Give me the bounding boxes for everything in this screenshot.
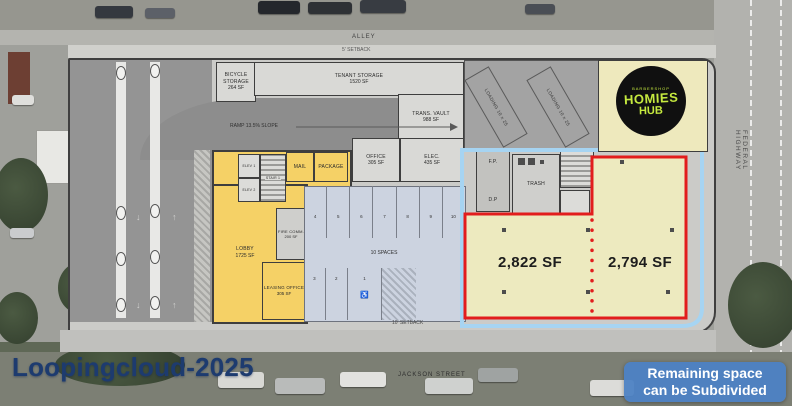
column xyxy=(502,290,506,294)
parking-stall-accessible: 1 ♿ xyxy=(347,268,382,320)
parked-car xyxy=(308,2,352,14)
room-name: STAIR 1 xyxy=(265,176,281,181)
room-area: 1725 SF xyxy=(216,253,274,260)
parking-count-label: 10 SPACES xyxy=(344,250,424,256)
stall-number: 3 xyxy=(313,276,316,281)
parking-stall: 9 xyxy=(419,186,442,238)
parking-stall: 3 xyxy=(304,268,325,320)
room-mail: MAIL xyxy=(286,152,314,182)
parking-stall: 5 xyxy=(326,186,349,238)
top-setback-label: 5' SETBACK xyxy=(342,47,370,53)
column xyxy=(150,64,160,78)
parked-car xyxy=(275,378,325,394)
wheelchair-icon: ♿ xyxy=(360,291,369,299)
trash-bin xyxy=(528,158,535,165)
parking-stall: 2 xyxy=(325,268,347,320)
room-name: BICYCLE STORAGE xyxy=(217,72,255,85)
room-package: PACKAGE xyxy=(314,152,348,182)
column xyxy=(666,290,670,294)
room-area: 264 SF xyxy=(228,85,244,92)
traffic-arrow-up: ↑ xyxy=(172,212,177,222)
column xyxy=(150,250,160,264)
bottom-setback-label: 10' SETBACK xyxy=(392,320,423,326)
parked-car xyxy=(478,368,518,382)
parked-car xyxy=(425,378,473,394)
parked-car xyxy=(10,228,34,238)
room-elec: ELEC. 435 SF xyxy=(400,138,464,182)
parking-stall: 4 xyxy=(304,186,326,238)
parked-car xyxy=(145,8,175,18)
parking-stall: 6 xyxy=(349,186,372,238)
trash-bin xyxy=(518,158,525,165)
top-setback-strip xyxy=(68,45,716,58)
room-name: PACKAGE xyxy=(318,164,343,171)
room-area: 988 SF xyxy=(423,117,439,124)
homies-hub-logo: BARBERSHOP HOMIES HUB xyxy=(616,66,686,136)
stall-number: 6 xyxy=(360,214,363,219)
logo-name-line2: HUB xyxy=(639,104,663,117)
room-name: ELEV 1 xyxy=(242,164,255,169)
callout-line1: Remaining space xyxy=(647,365,762,383)
tree xyxy=(0,292,38,344)
room-office: OFFICE 305 SF xyxy=(352,138,400,182)
bottom-sidewalk xyxy=(60,330,716,352)
traffic-arrow-down: ↓ xyxy=(136,212,141,222)
available-space-1-area: 2,822 SF xyxy=(498,254,562,271)
room-name: ELEV 2 xyxy=(242,188,255,193)
stall-number: 4 xyxy=(314,214,317,219)
column xyxy=(620,160,624,164)
parking-stall: 8 xyxy=(396,186,419,238)
traffic-arrow-down: ↓ xyxy=(136,300,141,310)
column xyxy=(116,252,126,266)
room-area: 305 SF xyxy=(368,160,384,167)
parked-car xyxy=(340,372,386,387)
alley-sidewalk xyxy=(0,30,792,45)
lane-stripe xyxy=(150,62,160,318)
stall-number: 1 xyxy=(363,276,366,281)
jackson-street-label: JACKSON STREET xyxy=(398,372,466,378)
column xyxy=(150,204,160,218)
parking-stall-hatched xyxy=(381,268,416,320)
room-fire-comm: FIRE COMM. 200 SF xyxy=(276,208,306,260)
room-bicycle-storage: BICYCLE STORAGE 264 SF xyxy=(216,62,256,102)
stair-1: STAIR 1 xyxy=(260,154,286,202)
lane-stripe xyxy=(116,62,126,318)
room-area: 435 SF xyxy=(424,160,440,167)
elev-3 xyxy=(560,190,590,216)
stall-number: 2 xyxy=(335,276,338,281)
room-area: 1520 SF xyxy=(350,79,369,86)
room-name: MAIL xyxy=(294,164,306,171)
room-name: TRASH xyxy=(527,181,545,188)
lobby-label: LOBBY 1725 SF xyxy=(216,246,274,259)
stair-2 xyxy=(560,150,594,188)
elev-1: ELEV 1 xyxy=(238,154,260,178)
room-area: 305 SF xyxy=(277,291,292,297)
drive-aisle xyxy=(70,60,212,322)
parked-car xyxy=(258,1,300,14)
tree xyxy=(0,158,48,232)
interior-walkway xyxy=(194,150,210,322)
room-area: 200 SF xyxy=(285,234,298,239)
column xyxy=(586,228,590,232)
room-name: D.P xyxy=(489,197,498,204)
column xyxy=(116,298,126,312)
stall-number: 10 xyxy=(451,214,456,219)
parking-row-top: 4 5 6 7 8 9 10 xyxy=(304,186,464,238)
available-space-2-area: 2,794 SF xyxy=(608,254,672,271)
room-leasing-office: LEASING OFFICE 305 SF xyxy=(262,262,306,320)
stall-number: 5 xyxy=(337,214,340,219)
elev-2: ELEV 2 xyxy=(238,178,260,202)
traffic-arrow-up: ↑ xyxy=(172,300,177,310)
lane-marking xyxy=(780,0,782,406)
parked-car xyxy=(525,4,555,14)
column xyxy=(670,228,674,232)
column xyxy=(116,66,126,80)
site-plan-flyer: ↓ ↑ ↓ ↑ BICYCLE STORAGE 264 SF TENANT ST… xyxy=(0,0,792,406)
stall-number: 9 xyxy=(430,214,433,219)
alley-label: ALLEY xyxy=(352,34,376,40)
federal-highway-label: FEDERAL HIGHWAY xyxy=(734,130,748,174)
room-tenant-storage: TENANT STORAGE 1520 SF xyxy=(254,62,464,96)
subdivide-callout-badge: Remaining space can be Subdivided xyxy=(624,362,786,402)
stall-number: 7 xyxy=(383,214,386,219)
parking-stall: 7 xyxy=(372,186,395,238)
ramp-label: RAMP 13.5% SLOPE xyxy=(230,123,278,129)
stall-number: 8 xyxy=(406,214,409,219)
parked-car xyxy=(95,6,133,18)
column xyxy=(502,228,506,232)
room-trans-vault: TRANS. VAULT 988 SF xyxy=(398,94,464,140)
parked-car xyxy=(12,95,34,105)
room-name: F.P. xyxy=(489,159,498,166)
tree xyxy=(728,262,792,348)
room-fp-dp: F.P. D.P xyxy=(476,150,510,212)
column xyxy=(586,290,590,294)
column xyxy=(116,206,126,220)
column xyxy=(150,296,160,310)
column xyxy=(540,160,544,164)
parked-car xyxy=(360,0,406,13)
parking-stall: 10 xyxy=(442,186,464,238)
parking-row-bottom: 3 2 1 ♿ xyxy=(304,268,416,320)
watermark: Loopingcloud-2025 xyxy=(12,352,254,383)
callout-line2: can be Subdivided xyxy=(643,382,767,400)
